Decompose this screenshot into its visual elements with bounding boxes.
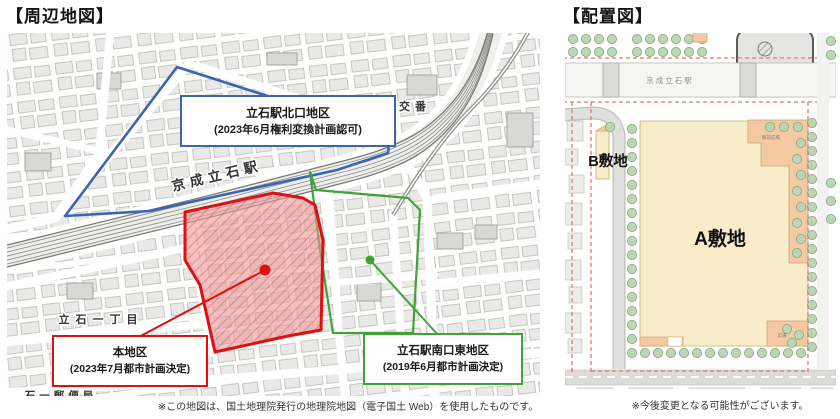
callout-main-district: 本地区 (2023年7月都市計画決定)	[52, 335, 208, 387]
town-name-label: 立石一丁目	[59, 312, 144, 326]
plaza-top-label: 駅前広場	[762, 134, 780, 141]
stair-hatch-circle	[758, 42, 772, 56]
right-footnote: ※今後変更となる可能性がございます。	[600, 397, 840, 412]
station-label: 京成立石駅	[646, 75, 694, 85]
post-office-label: 石一郵便局	[24, 389, 98, 396]
callout-south-east-district: 立石駅南口東地区 (2019年6月都市計画決定)	[363, 333, 523, 385]
main-district-status: (2023年7月都市計画決定)	[70, 362, 190, 378]
right-panel-title: 【配置図】	[563, 2, 653, 27]
figure-root: 【周辺地図】	[0, 0, 840, 419]
south-east-district-name: 立石駅南口東地区	[397, 343, 489, 360]
surrounding-area-map: 京成立石駅 立石駅前交番 立石一丁目 石一郵便局 立石駅北口地区 (2023年6…	[7, 33, 540, 396]
north-district-name: 立石駅北口地区	[246, 104, 330, 122]
trees-west-column	[627, 124, 636, 357]
site-plan-svg: 京成立石駅 A敷地 B敷地 駅前広場 広場	[565, 33, 836, 389]
south-road	[565, 370, 836, 385]
trees-east-column	[807, 118, 816, 351]
south-east-district-status: (2019年6月都市計画決定)	[383, 360, 503, 376]
site-plan: 京成立石駅 A敷地 B敷地 駅前広場 広場	[565, 33, 836, 389]
red-marker-dot	[260, 265, 271, 276]
left-footnote: ※この地図は、国土地理院発行の地理院地図（電子国土 Web）を使用したものです。	[148, 398, 548, 413]
small-structure	[668, 337, 682, 346]
small-plaza-top	[693, 33, 707, 42]
callout-north-district: 立石駅北口地区 (2023年6月権利変換計画認可)	[180, 95, 396, 147]
left-panel-title: 【周辺地図】	[6, 2, 114, 27]
plaza-bottom-label: 広場	[778, 332, 787, 339]
north-district-status: (2023年6月権利変換計画認可)	[214, 122, 362, 139]
green-marker-dot	[366, 256, 375, 265]
main-district-name: 本地区	[113, 345, 148, 362]
site-b-label: B敷地	[588, 152, 628, 170]
elevated-rail-band	[565, 63, 836, 97]
site-a-label: A敷地	[694, 227, 746, 250]
